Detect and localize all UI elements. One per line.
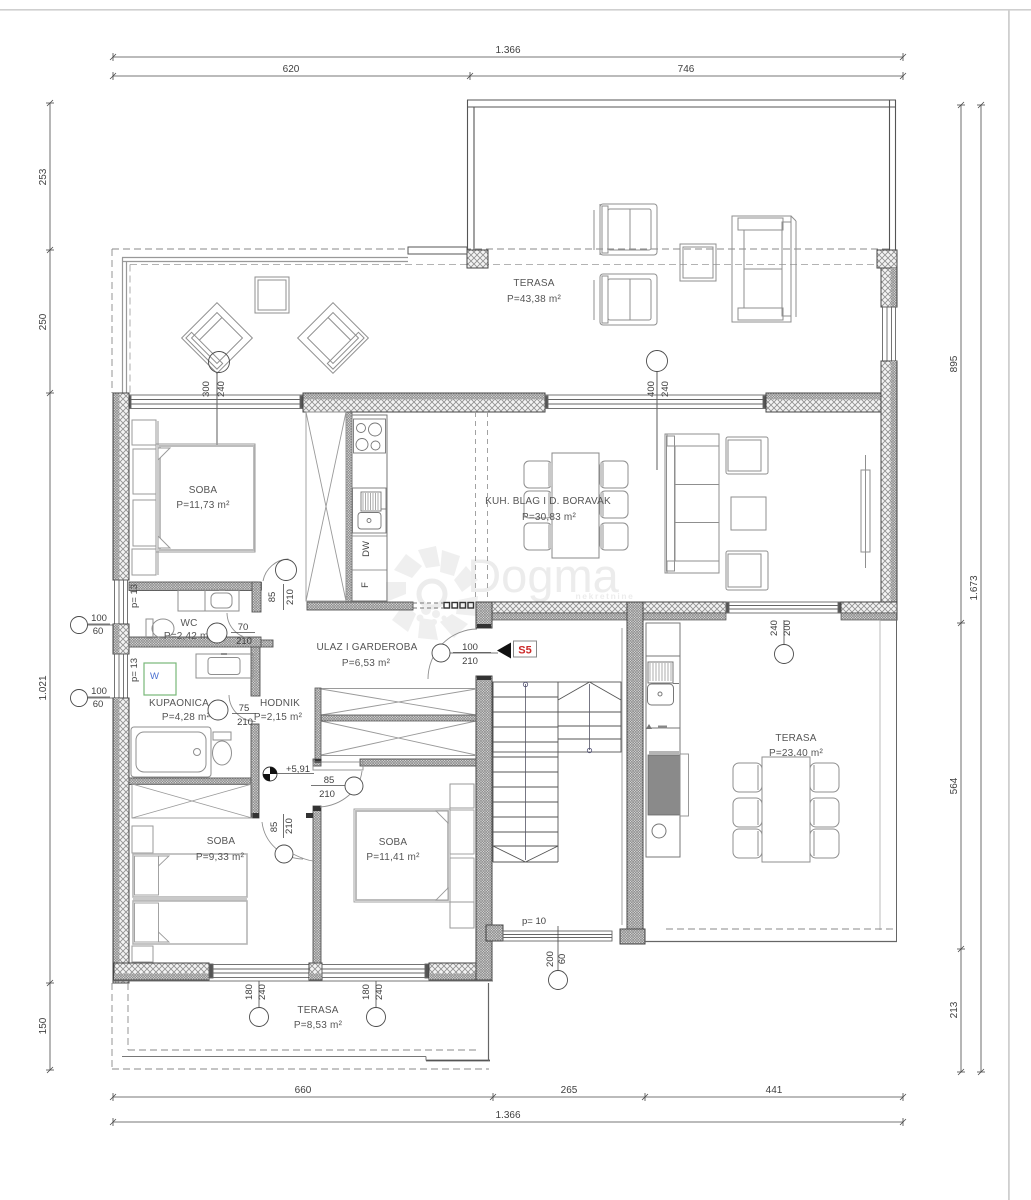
svg-text:P=6,53 m²: P=6,53 m²	[342, 658, 391, 669]
svg-text:F: F	[360, 582, 371, 588]
svg-text:213: 213	[949, 1001, 960, 1018]
svg-text:210: 210	[319, 789, 335, 800]
svg-text:1.021: 1.021	[38, 675, 49, 700]
svg-text:P=4,28 m²: P=4,28 m²	[162, 712, 211, 723]
svg-text:P=2,42 m²: P=2,42 m²	[164, 631, 213, 642]
svg-text:P=11,73 m²: P=11,73 m²	[176, 500, 230, 511]
svg-text:P=8,53 m²: P=8,53 m²	[294, 1020, 343, 1031]
svg-text:210: 210	[284, 818, 295, 834]
svg-text:70: 70	[238, 622, 249, 633]
svg-text:TERASA: TERASA	[513, 278, 554, 289]
svg-text:746: 746	[678, 64, 695, 75]
svg-text:SOBA: SOBA	[207, 836, 236, 847]
svg-text:620: 620	[283, 64, 300, 75]
svg-text:1.366: 1.366	[495, 1110, 520, 1121]
svg-text:150: 150	[38, 1017, 49, 1034]
svg-text:SOBA: SOBA	[189, 485, 218, 496]
svg-text:210: 210	[236, 636, 252, 647]
svg-text:SOBA: SOBA	[379, 837, 408, 848]
svg-text:253: 253	[38, 168, 49, 185]
svg-text:180: 180	[361, 984, 372, 1000]
svg-text:W: W	[150, 671, 159, 682]
svg-text:250: 250	[38, 313, 49, 330]
svg-text:HODNIK: HODNIK	[260, 698, 300, 709]
svg-text:240: 240	[374, 984, 385, 1000]
svg-text:DW: DW	[361, 541, 372, 557]
svg-text:p= 13: p= 13	[129, 584, 140, 608]
svg-text:85: 85	[267, 592, 278, 603]
svg-text:WC: WC	[180, 618, 197, 629]
svg-text:60: 60	[93, 626, 104, 637]
svg-text:100: 100	[91, 686, 107, 697]
svg-text:P=30,83 m²: P=30,83 m²	[522, 512, 576, 523]
svg-text:240: 240	[257, 984, 268, 1000]
svg-text:895: 895	[949, 355, 960, 372]
svg-text:210: 210	[285, 589, 296, 605]
svg-text:200: 200	[545, 951, 556, 967]
svg-text:p= 10: p= 10	[522, 916, 546, 927]
svg-text:P=9,33 m²: P=9,33 m²	[196, 852, 245, 863]
svg-text:TERASA: TERASA	[297, 1005, 338, 1016]
svg-text:1.366: 1.366	[495, 45, 520, 56]
svg-text:p= 13: p= 13	[129, 658, 140, 682]
svg-text:60: 60	[557, 954, 568, 965]
svg-text:100: 100	[91, 613, 107, 624]
svg-text:P=11,41 m²: P=11,41 m²	[366, 852, 420, 863]
svg-text:660: 660	[295, 1085, 312, 1096]
svg-text:KUH. BLAG I D. BORAVAK: KUH. BLAG I D. BORAVAK	[485, 496, 611, 507]
svg-text:1.673: 1.673	[969, 575, 980, 600]
svg-text:210: 210	[237, 717, 253, 728]
svg-text:60: 60	[93, 699, 104, 710]
svg-text:265: 265	[561, 1085, 578, 1096]
svg-text:KUPAONICA: KUPAONICA	[149, 698, 209, 709]
svg-text:180: 180	[244, 984, 255, 1000]
svg-text:441: 441	[766, 1085, 783, 1096]
svg-text:ULAZ I GARDEROBA: ULAZ I GARDEROBA	[317, 642, 418, 653]
svg-text:TERASA: TERASA	[775, 733, 816, 744]
svg-text:85: 85	[269, 822, 280, 833]
svg-text:P=43,38 m²: P=43,38 m²	[507, 294, 561, 305]
svg-text:200: 200	[782, 620, 793, 636]
svg-text:210: 210	[462, 656, 478, 667]
svg-text:nekretnine: nekretnine	[576, 591, 635, 601]
svg-text:240: 240	[769, 620, 780, 636]
svg-text:P=2,15 m²: P=2,15 m²	[254, 712, 303, 723]
svg-text:100: 100	[462, 642, 478, 653]
svg-text:85: 85	[324, 775, 335, 786]
svg-text:S5: S5	[518, 645, 531, 657]
svg-text:75: 75	[239, 703, 250, 714]
svg-text:564: 564	[949, 777, 960, 794]
